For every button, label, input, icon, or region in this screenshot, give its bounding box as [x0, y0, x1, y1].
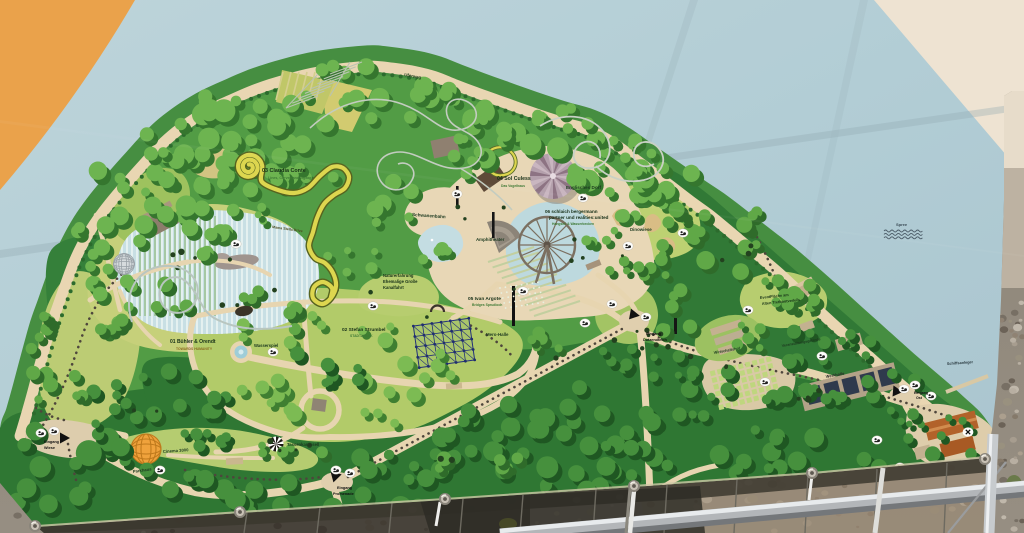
- svg-text:05 Ivan Argote: 05 Ivan Argote: [468, 296, 501, 302]
- svg-text:Mero-Halle: Mero-Halle: [486, 332, 509, 337]
- svg-text:Spree: Spree: [896, 222, 908, 227]
- svg-text:Naturerfahrung: Naturerfahrung: [383, 273, 414, 278]
- svg-text:partner und realities:united: partner und realities:united: [549, 215, 609, 220]
- svg-text:03 Claudia Conte: 03 Claudia Conte: [262, 168, 306, 174]
- svg-text:Wasserspiel: Wasserspiel: [254, 343, 278, 348]
- svg-text:STADTAPARK: STADTAPARK: [350, 334, 373, 338]
- svg-text:Dinowiese: Dinowiese: [630, 227, 652, 232]
- svg-text:02 Stefan Strumbel: 02 Stefan Strumbel: [342, 327, 385, 333]
- svg-text:Tassenkarussell: Tassenkarussell: [287, 442, 319, 447]
- svg-text:Hangseil & Wasserbecken: Hangseil & Wasserbecken: [552, 222, 594, 226]
- svg-text:Bridges Sprudloch: Bridges Sprudloch: [472, 303, 502, 307]
- svg-text:Wiese: Wiese: [44, 446, 55, 450]
- svg-text:Eingang: Eingang: [646, 332, 662, 336]
- svg-text:Eingang: Eingang: [337, 486, 353, 490]
- svg-text:01 Bühler & Orendt: 01 Bühler & Orendt: [170, 339, 216, 345]
- svg-text:TOWARDS HUMANITY: TOWARDS HUMANITY: [176, 347, 213, 351]
- svg-text:Ehemalige Große: Ehemalige Große: [383, 279, 418, 284]
- svg-text:Eingang: Eingang: [914, 391, 928, 395]
- svg-text:Promenade: Promenade: [333, 492, 354, 496]
- svg-text:04 Sol Culess: 04 Sol Culess: [497, 176, 531, 182]
- svg-text:Dutzendteich: Dutzendteich: [643, 338, 668, 342]
- svg-text:Kanalfahrt: Kanalfahrt: [383, 285, 404, 290]
- svg-text:Amphitheater: Amphitheater: [476, 237, 505, 242]
- svg-text:Eingang: Eingang: [44, 440, 60, 444]
- svg-text:06 schlaich bergermann: 06 schlaich bergermann: [545, 209, 598, 214]
- svg-text:Lines, Curves and Zigzag: Lines, Curves and Zigzag: [268, 176, 311, 180]
- svg-text:Englisches Dorf: Englisches Dorf: [566, 185, 601, 190]
- svg-text:Ost: Ost: [916, 396, 923, 400]
